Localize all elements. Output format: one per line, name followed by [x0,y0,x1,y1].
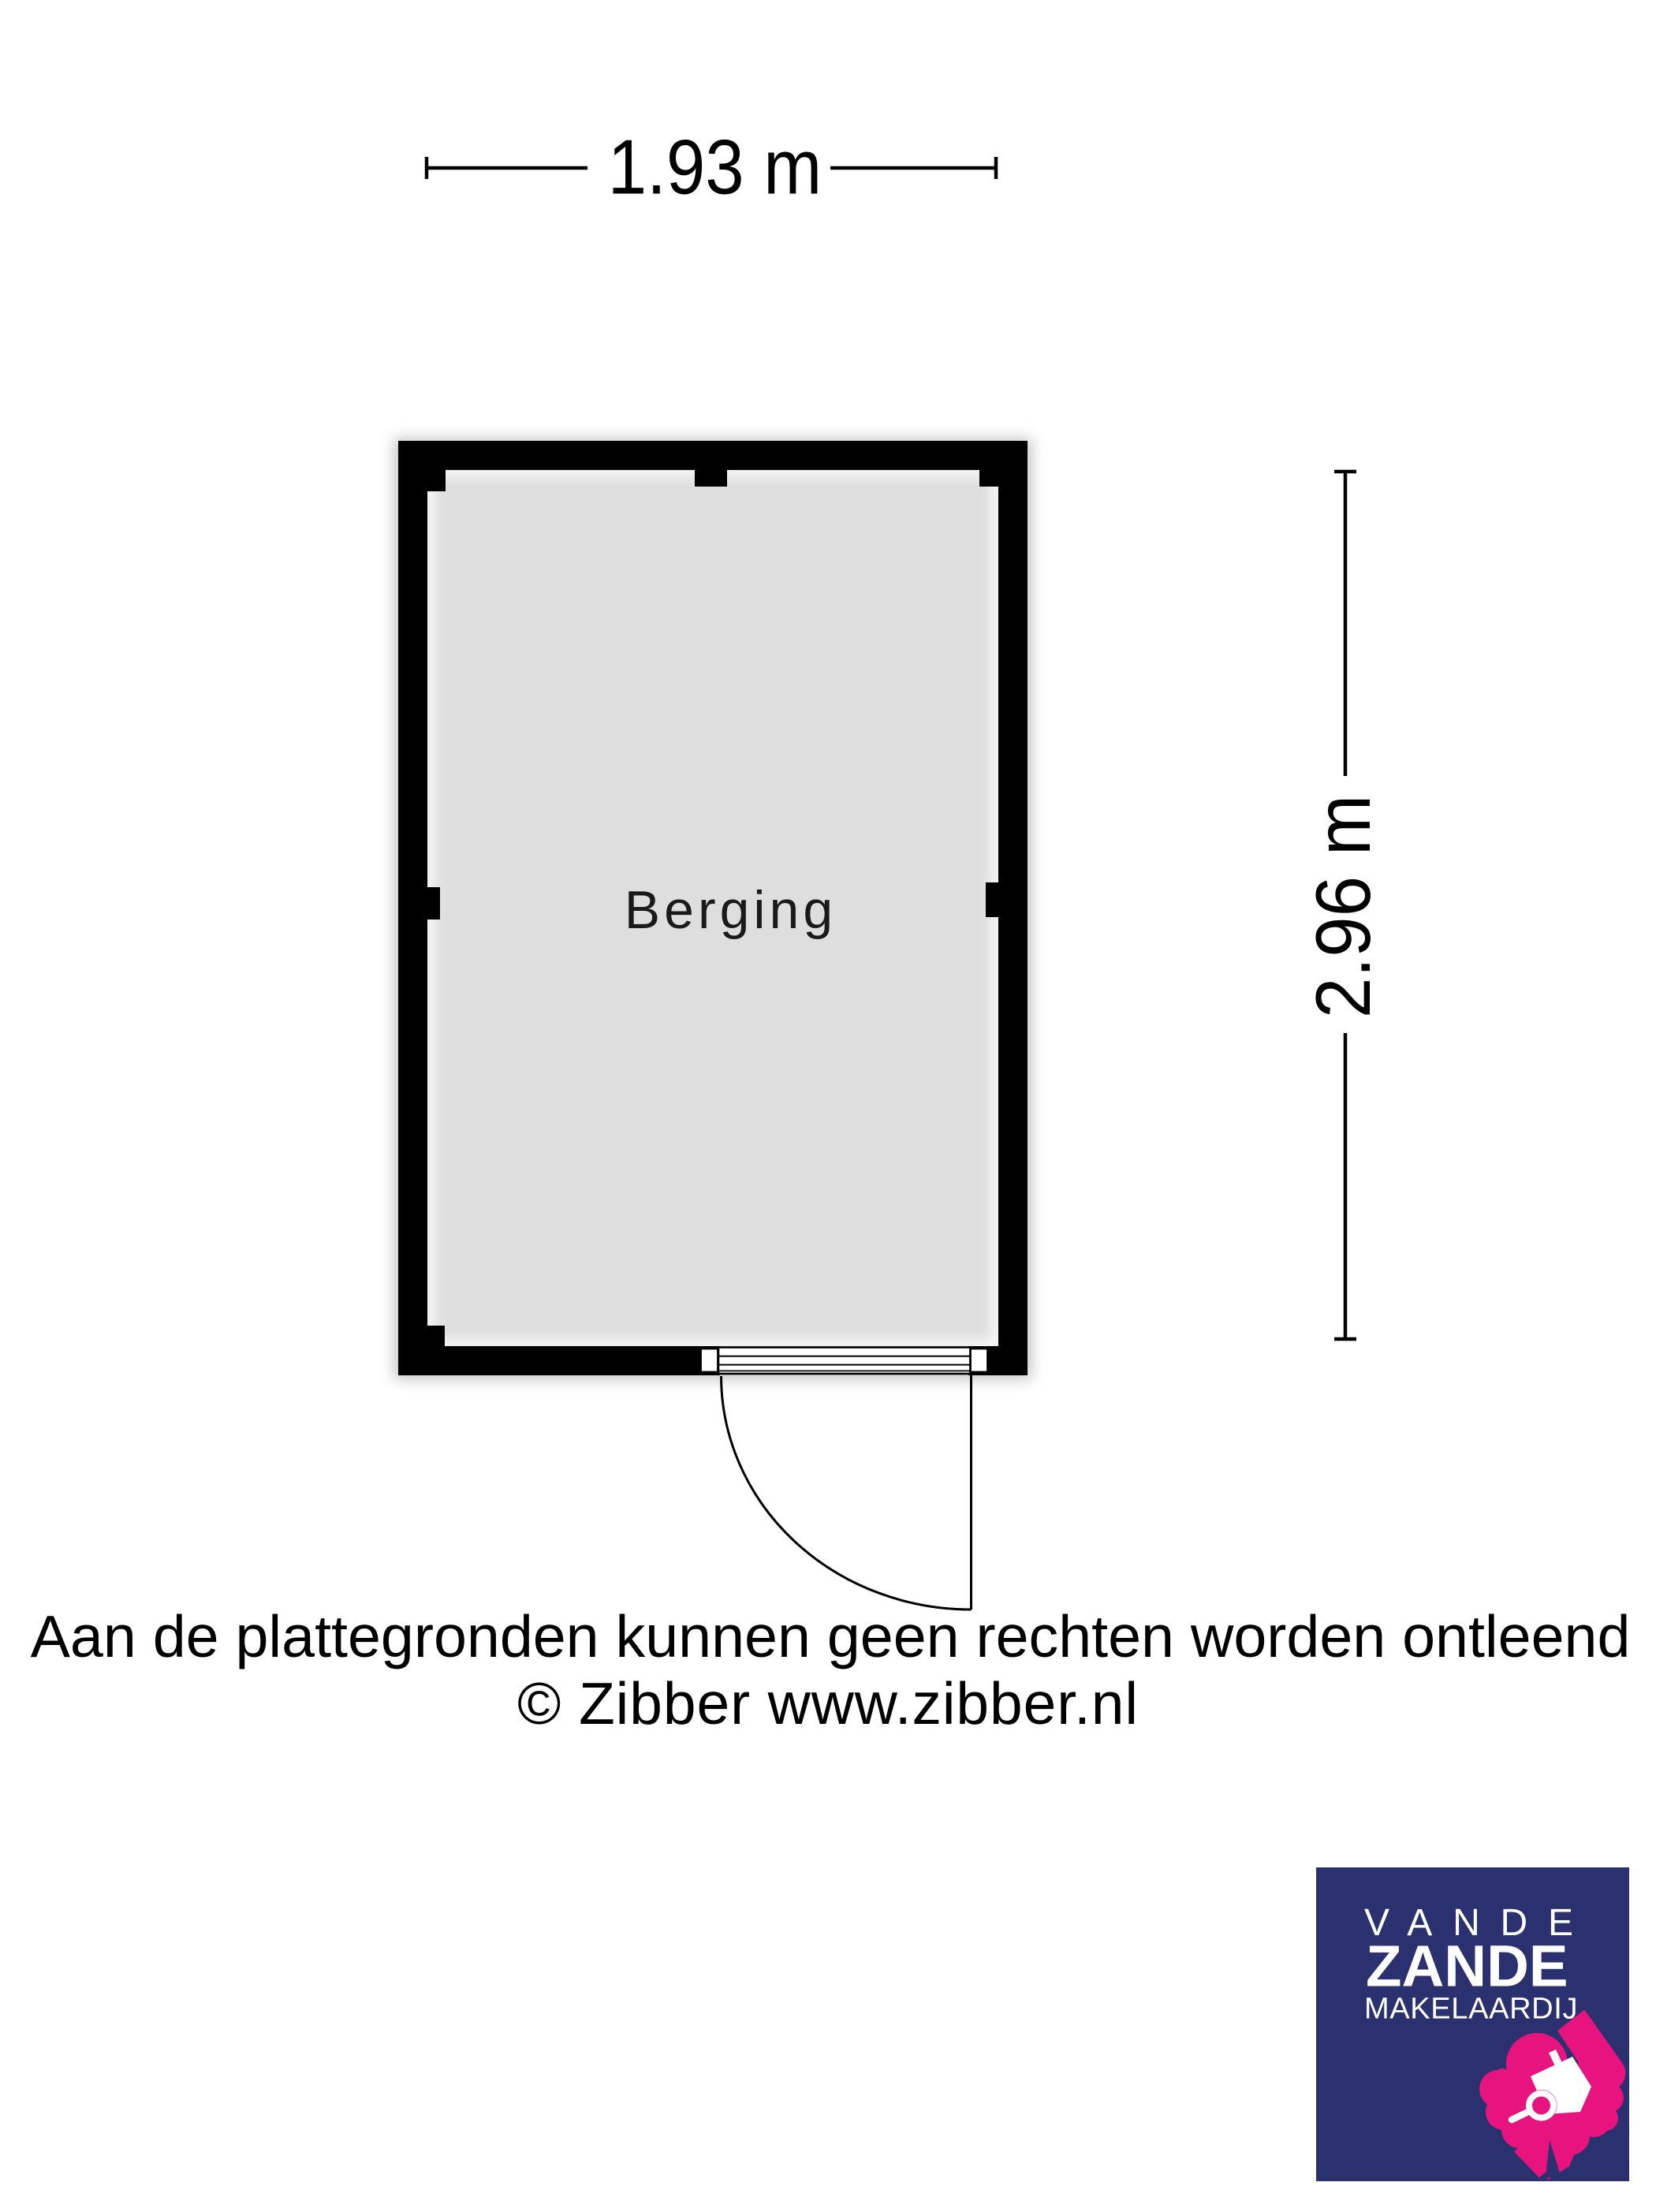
svg-text:1.93 m: 1.93 m [608,123,822,210]
svg-text:ZANDE: ZANDE [1366,1934,1568,1999]
svg-text:Berging: Berging [625,880,837,940]
svg-text:© Zibber www.zibber.nl: © Zibber www.zibber.nl [517,1670,1139,1736]
svg-text:Aan de plattegronden kunnen ge: Aan de plattegronden kunnen geen rechten… [31,1603,1631,1669]
svg-text:MAKELAARDIJ: MAKELAARDIJ [1364,1993,1578,2026]
svg-text:2.96 m: 2.96 m [1301,795,1387,1018]
